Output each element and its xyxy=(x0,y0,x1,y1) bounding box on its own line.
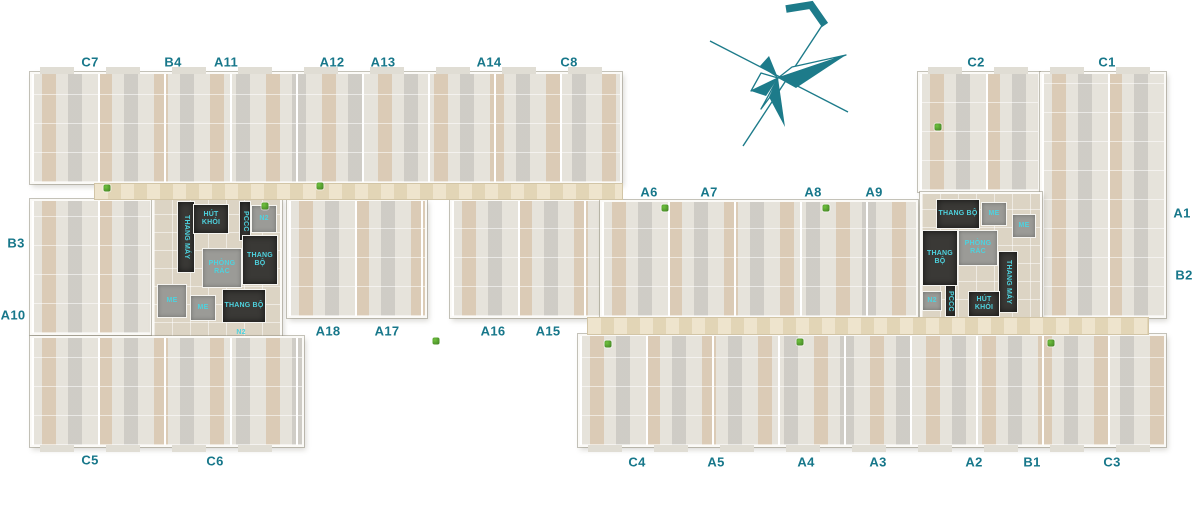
unit-label-c8: C8 xyxy=(560,55,577,70)
core-room-hut-khoi: HÚT KHÓI xyxy=(968,291,1000,317)
building-block-a18-a17 xyxy=(287,199,427,318)
plant-icon xyxy=(605,341,612,348)
unit-label-a2: A2 xyxy=(965,455,982,470)
plant-icon xyxy=(317,183,324,190)
unit-label-a18: A18 xyxy=(316,324,341,339)
plant-icon xyxy=(662,205,669,212)
unit-label-c4: C4 xyxy=(628,455,645,470)
unit-label-a9: A9 xyxy=(865,185,882,200)
building-block-left-column xyxy=(30,199,152,335)
core-room-pccc: PCCC xyxy=(945,285,956,317)
corridor-left-wing xyxy=(95,184,622,199)
building-block-a16-a15 xyxy=(450,199,622,318)
unit-label-c3: C3 xyxy=(1103,455,1120,470)
unit-label-a1: A1 xyxy=(1173,206,1190,221)
unit-label-a10: A10 xyxy=(1,308,26,323)
unit-label-a16: A16 xyxy=(481,324,506,339)
unit-label-a6: A6 xyxy=(640,185,657,200)
unit-label-c5: C5 xyxy=(81,453,98,468)
unit-label-c2: C2 xyxy=(967,55,984,70)
floor-plan: C7B4A11A12A13A14C8C2C1A6A7A8A9A1B2B3A10A… xyxy=(0,0,1200,521)
unit-label-a8: A8 xyxy=(804,185,821,200)
plant-icon xyxy=(104,185,111,192)
plant-icon xyxy=(823,205,830,212)
core-room-me: ME xyxy=(190,295,216,321)
unit-label-b2: B2 xyxy=(1175,268,1192,283)
plant-icon xyxy=(1048,340,1055,347)
plant-icon xyxy=(797,339,804,346)
unit-label-c7: C7 xyxy=(81,55,98,70)
unit-label-c1: C1 xyxy=(1098,55,1115,70)
core-room-n2: N2 xyxy=(221,325,261,341)
unit-label-a7: A7 xyxy=(700,185,717,200)
unit-label-a11: A11 xyxy=(214,55,238,70)
unit-label-a3: A3 xyxy=(869,455,886,470)
core-room-hut-khoi: HÚT KHÓI xyxy=(193,204,229,234)
plant-icon xyxy=(433,338,440,345)
compass-icon xyxy=(698,0,890,154)
unit-label-a5: A5 xyxy=(707,455,724,470)
unit-label-b4: B4 xyxy=(164,55,181,70)
core-room-me: ME xyxy=(157,284,187,318)
core-room-phong-rac: PHÒNG RÁC xyxy=(958,230,998,266)
building-block-bottom-row xyxy=(578,334,1166,447)
core-room-thang-bo: THANG BỘ xyxy=(242,235,278,285)
unit-label-a14: A14 xyxy=(477,55,502,70)
building-block-c5-c6 xyxy=(30,336,304,447)
unit-label-a15: A15 xyxy=(536,324,561,339)
unit-label-a13: A13 xyxy=(371,55,396,70)
corridor-right-wing xyxy=(588,318,1148,334)
unit-label-a4: A4 xyxy=(797,455,814,470)
plant-icon xyxy=(262,203,269,210)
core-room-thang-bo: THANG BỘ xyxy=(936,199,980,229)
plant-icon xyxy=(935,124,942,131)
core-room-thang-may: THANG MÁY xyxy=(998,251,1018,313)
core-room-phong-rac: PHÒNG RÁC xyxy=(202,248,242,288)
building-block-c2 xyxy=(918,72,1040,192)
unit-label-c6: C6 xyxy=(206,454,223,469)
core-room-thang-bo: THANG BỘ xyxy=(922,230,958,286)
core-room-me: ME xyxy=(1012,214,1036,238)
core-room-n2: N2 xyxy=(922,291,942,311)
core-room-thang-bo: THANG BỘ xyxy=(222,289,266,323)
unit-label-a17: A17 xyxy=(375,324,400,339)
unit-label-a12: A12 xyxy=(320,55,345,70)
unit-label-b1: B1 xyxy=(1023,455,1040,470)
building-block-a6-a9 xyxy=(600,200,918,318)
building-block-top-row-left xyxy=(30,72,622,184)
building-block-right-column xyxy=(1040,72,1166,318)
unit-label-b3: B3 xyxy=(7,236,24,251)
core-room-me: ME xyxy=(981,202,1007,226)
